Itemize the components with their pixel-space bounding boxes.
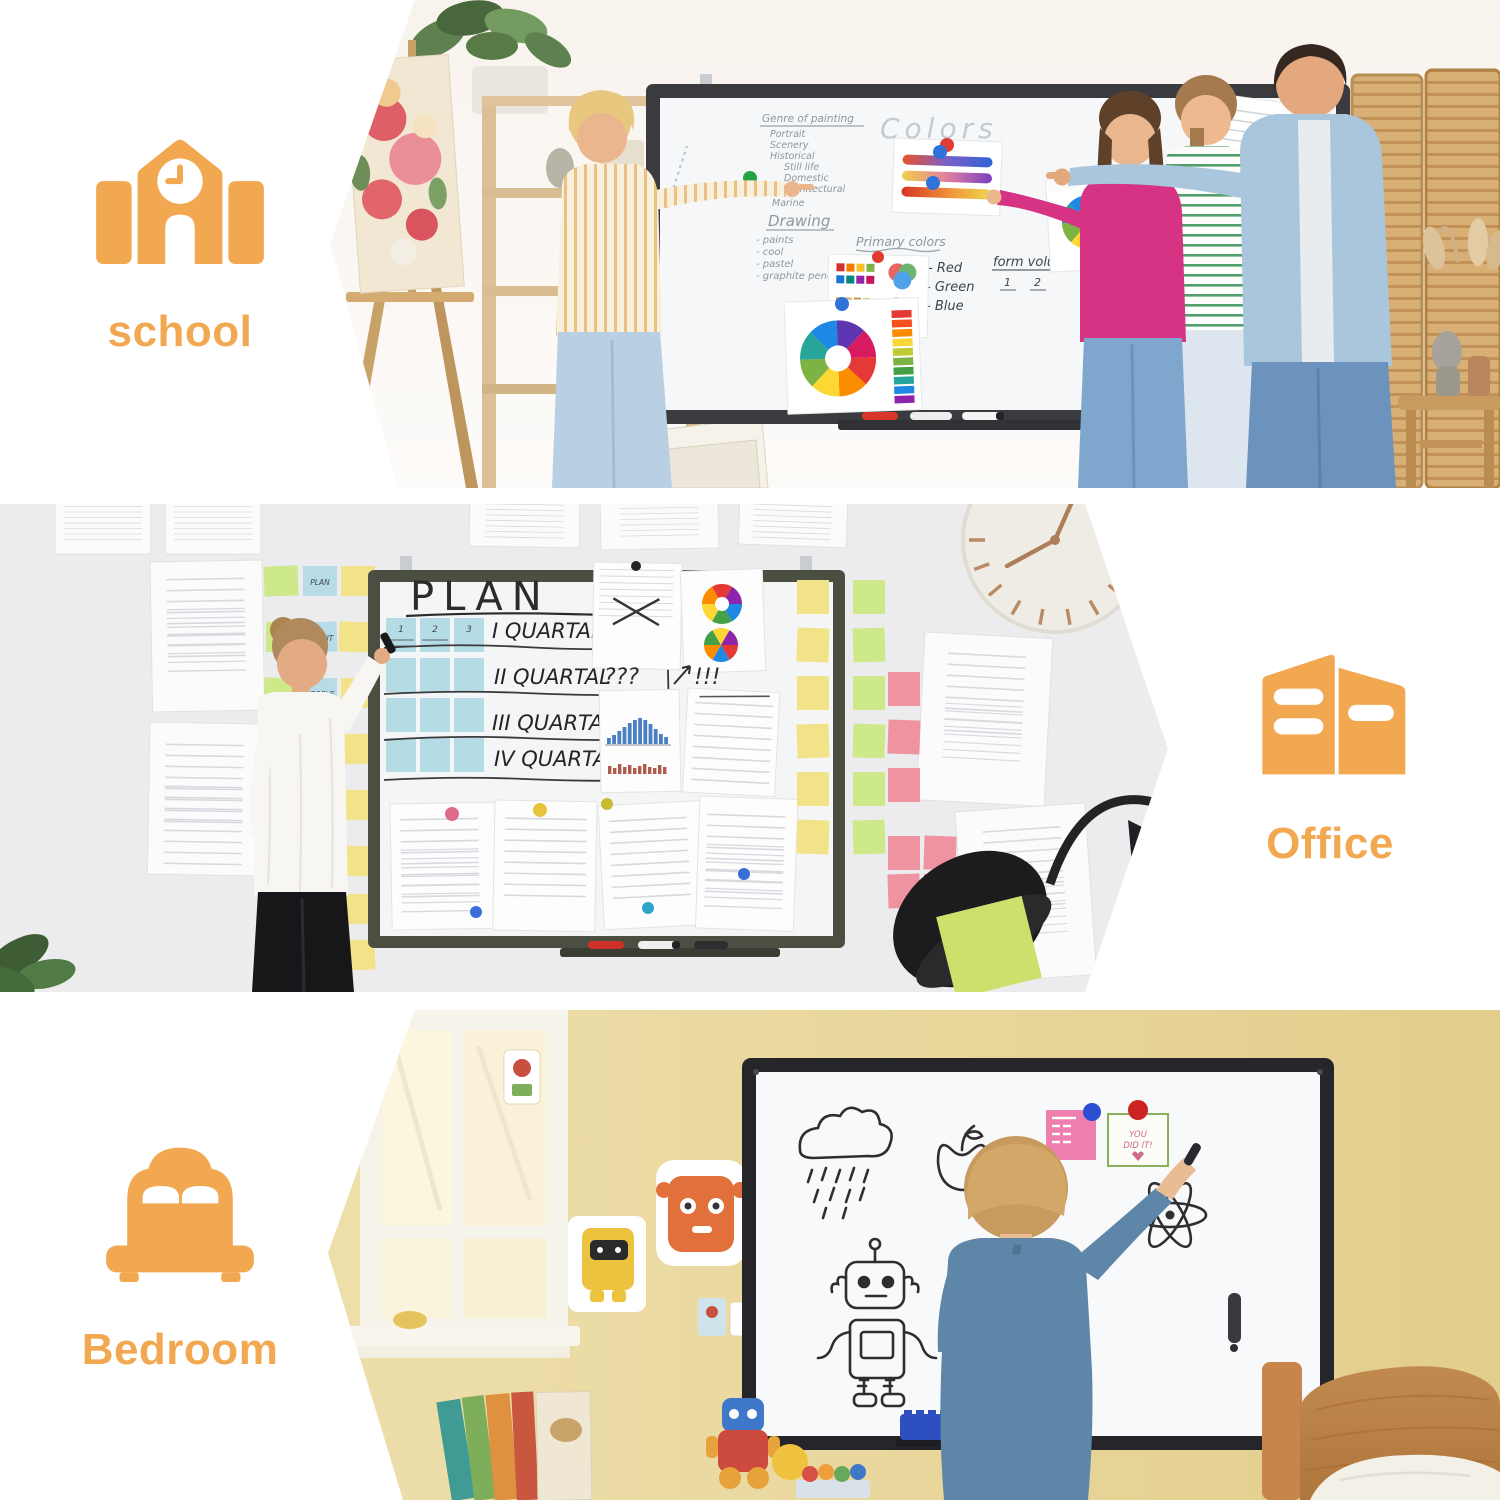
svg-text:- Blue: - Blue [926, 299, 964, 314]
svg-text:Still life: Still life [784, 162, 819, 173]
svg-text:- cool: - cool [756, 247, 784, 258]
svg-text:- paints: - paints [756, 235, 794, 246]
book-stack [796, 1480, 870, 1498]
svg-text:2: 2 [432, 625, 438, 635]
office-label: Office [1266, 822, 1394, 866]
table-paper-x [592, 562, 682, 670]
svg-text:- pastel: - pastel [756, 259, 794, 270]
blue-magnet [933, 145, 947, 159]
office-building-icon [1249, 628, 1411, 776]
svg-text:- graphite pencil: - graphite pencil [756, 271, 838, 282]
svg-text:Marine: Marine [772, 198, 805, 209]
yellow-robot-sticker [568, 1216, 646, 1312]
blue-magnet [738, 868, 750, 880]
bedroom-section: ABC YOU DID IT! [0, 1010, 1500, 1500]
bedroom-label: Bedroom [82, 1328, 279, 1372]
svg-text:DID IT!: DID IT! [1123, 1141, 1152, 1151]
cyan-magnet [642, 902, 654, 914]
blue-magnet [926, 176, 940, 190]
window [348, 1010, 580, 1358]
exclamation-marks: !!! [694, 665, 720, 690]
black-magnet [631, 561, 641, 571]
svg-text:YOU: YOU [1129, 1130, 1148, 1140]
office-section: PLAN PROFIT PEOPLE LIFE BALANCE WEB DESI… [0, 504, 1500, 992]
svg-text:Primary colors: Primary colors [856, 234, 946, 249]
svg-text:Historical: Historical [770, 151, 815, 162]
pink-magnet [445, 807, 459, 821]
svg-text:1: 1 [398, 625, 404, 635]
planning-whiteboard: PLAN 1 2 3 I QUARTAL II [368, 556, 845, 957]
bed [1262, 1362, 1500, 1500]
svg-text:Genre of painting: Genre of painting [762, 113, 854, 125]
toy-on-sill [393, 1311, 427, 1329]
svg-text:- Red: - Red [928, 261, 963, 276]
bedroom-label-block: Bedroom [66, 1140, 294, 1372]
svg-text:3: 3 [466, 625, 472, 635]
school-label-block: school [72, 118, 288, 354]
question-marks: ??? [604, 665, 639, 690]
donut-pie-paper [680, 569, 766, 674]
orange-robot-sticker [656, 1160, 748, 1266]
yellow-magnet [601, 798, 613, 810]
color-donut-paper [784, 298, 922, 415]
sticky-note-label: PLAN [310, 578, 330, 587]
board-bottom-papers [390, 796, 798, 932]
blue-magnet [835, 297, 849, 311]
svg-text:Drawing: Drawing [768, 212, 830, 230]
svg-text:II QUARTAL: II QUARTAL [494, 665, 611, 689]
bed-icon [98, 1140, 262, 1282]
svg-text:Scenery: Scenery [770, 140, 809, 151]
svg-text:Portrait: Portrait [770, 129, 807, 140]
svg-text:III QUARTAL: III QUARTAL [492, 711, 615, 735]
yellow-magnet [533, 803, 547, 817]
school-building-icon [96, 118, 264, 264]
office-label-block: Office [1232, 628, 1428, 866]
school-label: school [108, 310, 253, 354]
red-magnet [872, 251, 884, 263]
svg-text:1: 1 [1004, 276, 1011, 289]
card-sticker [504, 1050, 540, 1104]
svg-text:I QUARTAL: I QUARTAL [492, 619, 603, 643]
bar-chart-paper [599, 689, 681, 792]
school-section: Colors Genre of painting Portrait Scener… [0, 0, 1500, 488]
blue-magnet [470, 906, 482, 918]
table-paper [683, 688, 780, 797]
svg-text:- Green: - Green [926, 280, 974, 295]
svg-text:2: 2 [1034, 276, 1041, 289]
